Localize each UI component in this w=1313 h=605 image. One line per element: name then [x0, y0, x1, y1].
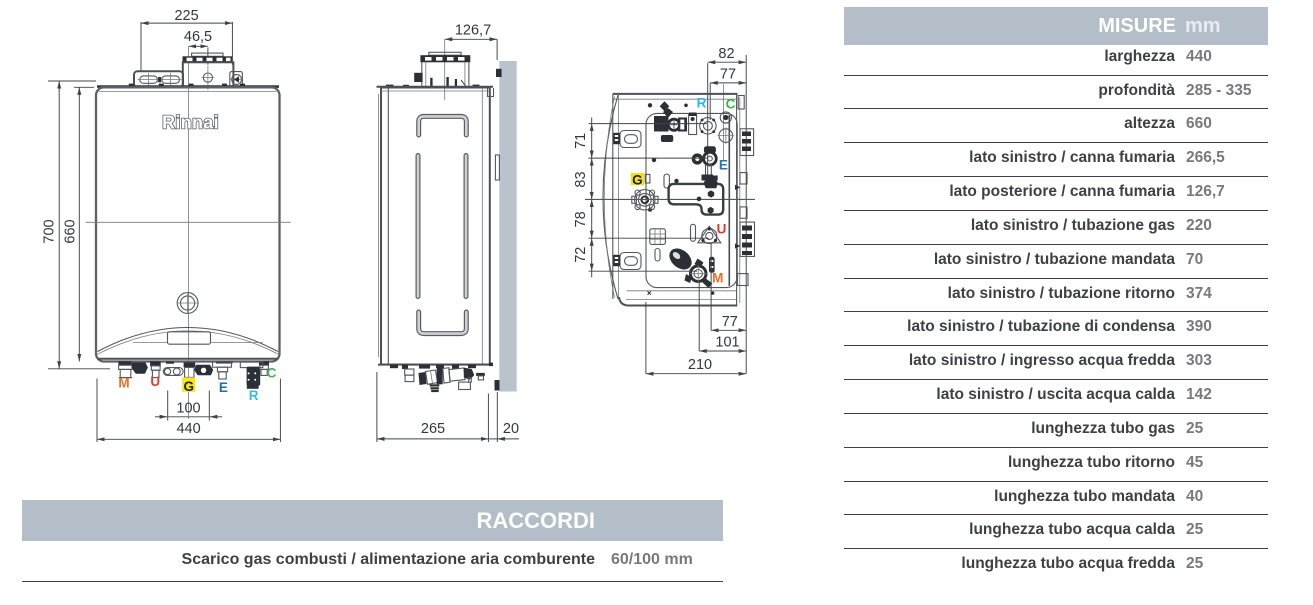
svg-text:C: C [267, 365, 277, 380]
svg-text:U: U [150, 374, 160, 389]
svg-text:100: 100 [176, 401, 200, 417]
svg-text:G: G [184, 379, 195, 394]
svg-text:E: E [219, 380, 228, 395]
svg-text:440: 440 [176, 421, 200, 437]
svg-text:78: 78 [573, 211, 589, 227]
svg-text:660: 660 [63, 219, 79, 243]
svg-text:101: 101 [715, 334, 739, 350]
svg-text:72: 72 [573, 247, 589, 263]
svg-text:83: 83 [573, 171, 589, 187]
svg-text:700: 700 [42, 219, 58, 243]
svg-text:Rinnai: Rinnai [162, 113, 219, 133]
svg-text:M: M [118, 375, 129, 390]
svg-text:R: R [249, 388, 259, 403]
svg-text:M: M [712, 271, 723, 286]
svg-text:82: 82 [718, 46, 734, 62]
svg-text:U: U [717, 221, 727, 236]
svg-text:210: 210 [688, 357, 712, 373]
svg-text:E: E [719, 157, 728, 172]
svg-text:225: 225 [174, 8, 198, 24]
svg-text:G: G [632, 172, 643, 187]
svg-text:20: 20 [503, 421, 519, 437]
svg-text:265: 265 [421, 421, 445, 437]
svg-text:77: 77 [722, 314, 738, 330]
svg-text:46,5: 46,5 [184, 29, 212, 45]
svg-text:R: R [697, 96, 707, 111]
svg-text:71: 71 [573, 133, 589, 149]
svg-text:77: 77 [720, 67, 736, 83]
svg-text:126,7: 126,7 [455, 23, 491, 39]
svg-text:C: C [726, 97, 736, 112]
